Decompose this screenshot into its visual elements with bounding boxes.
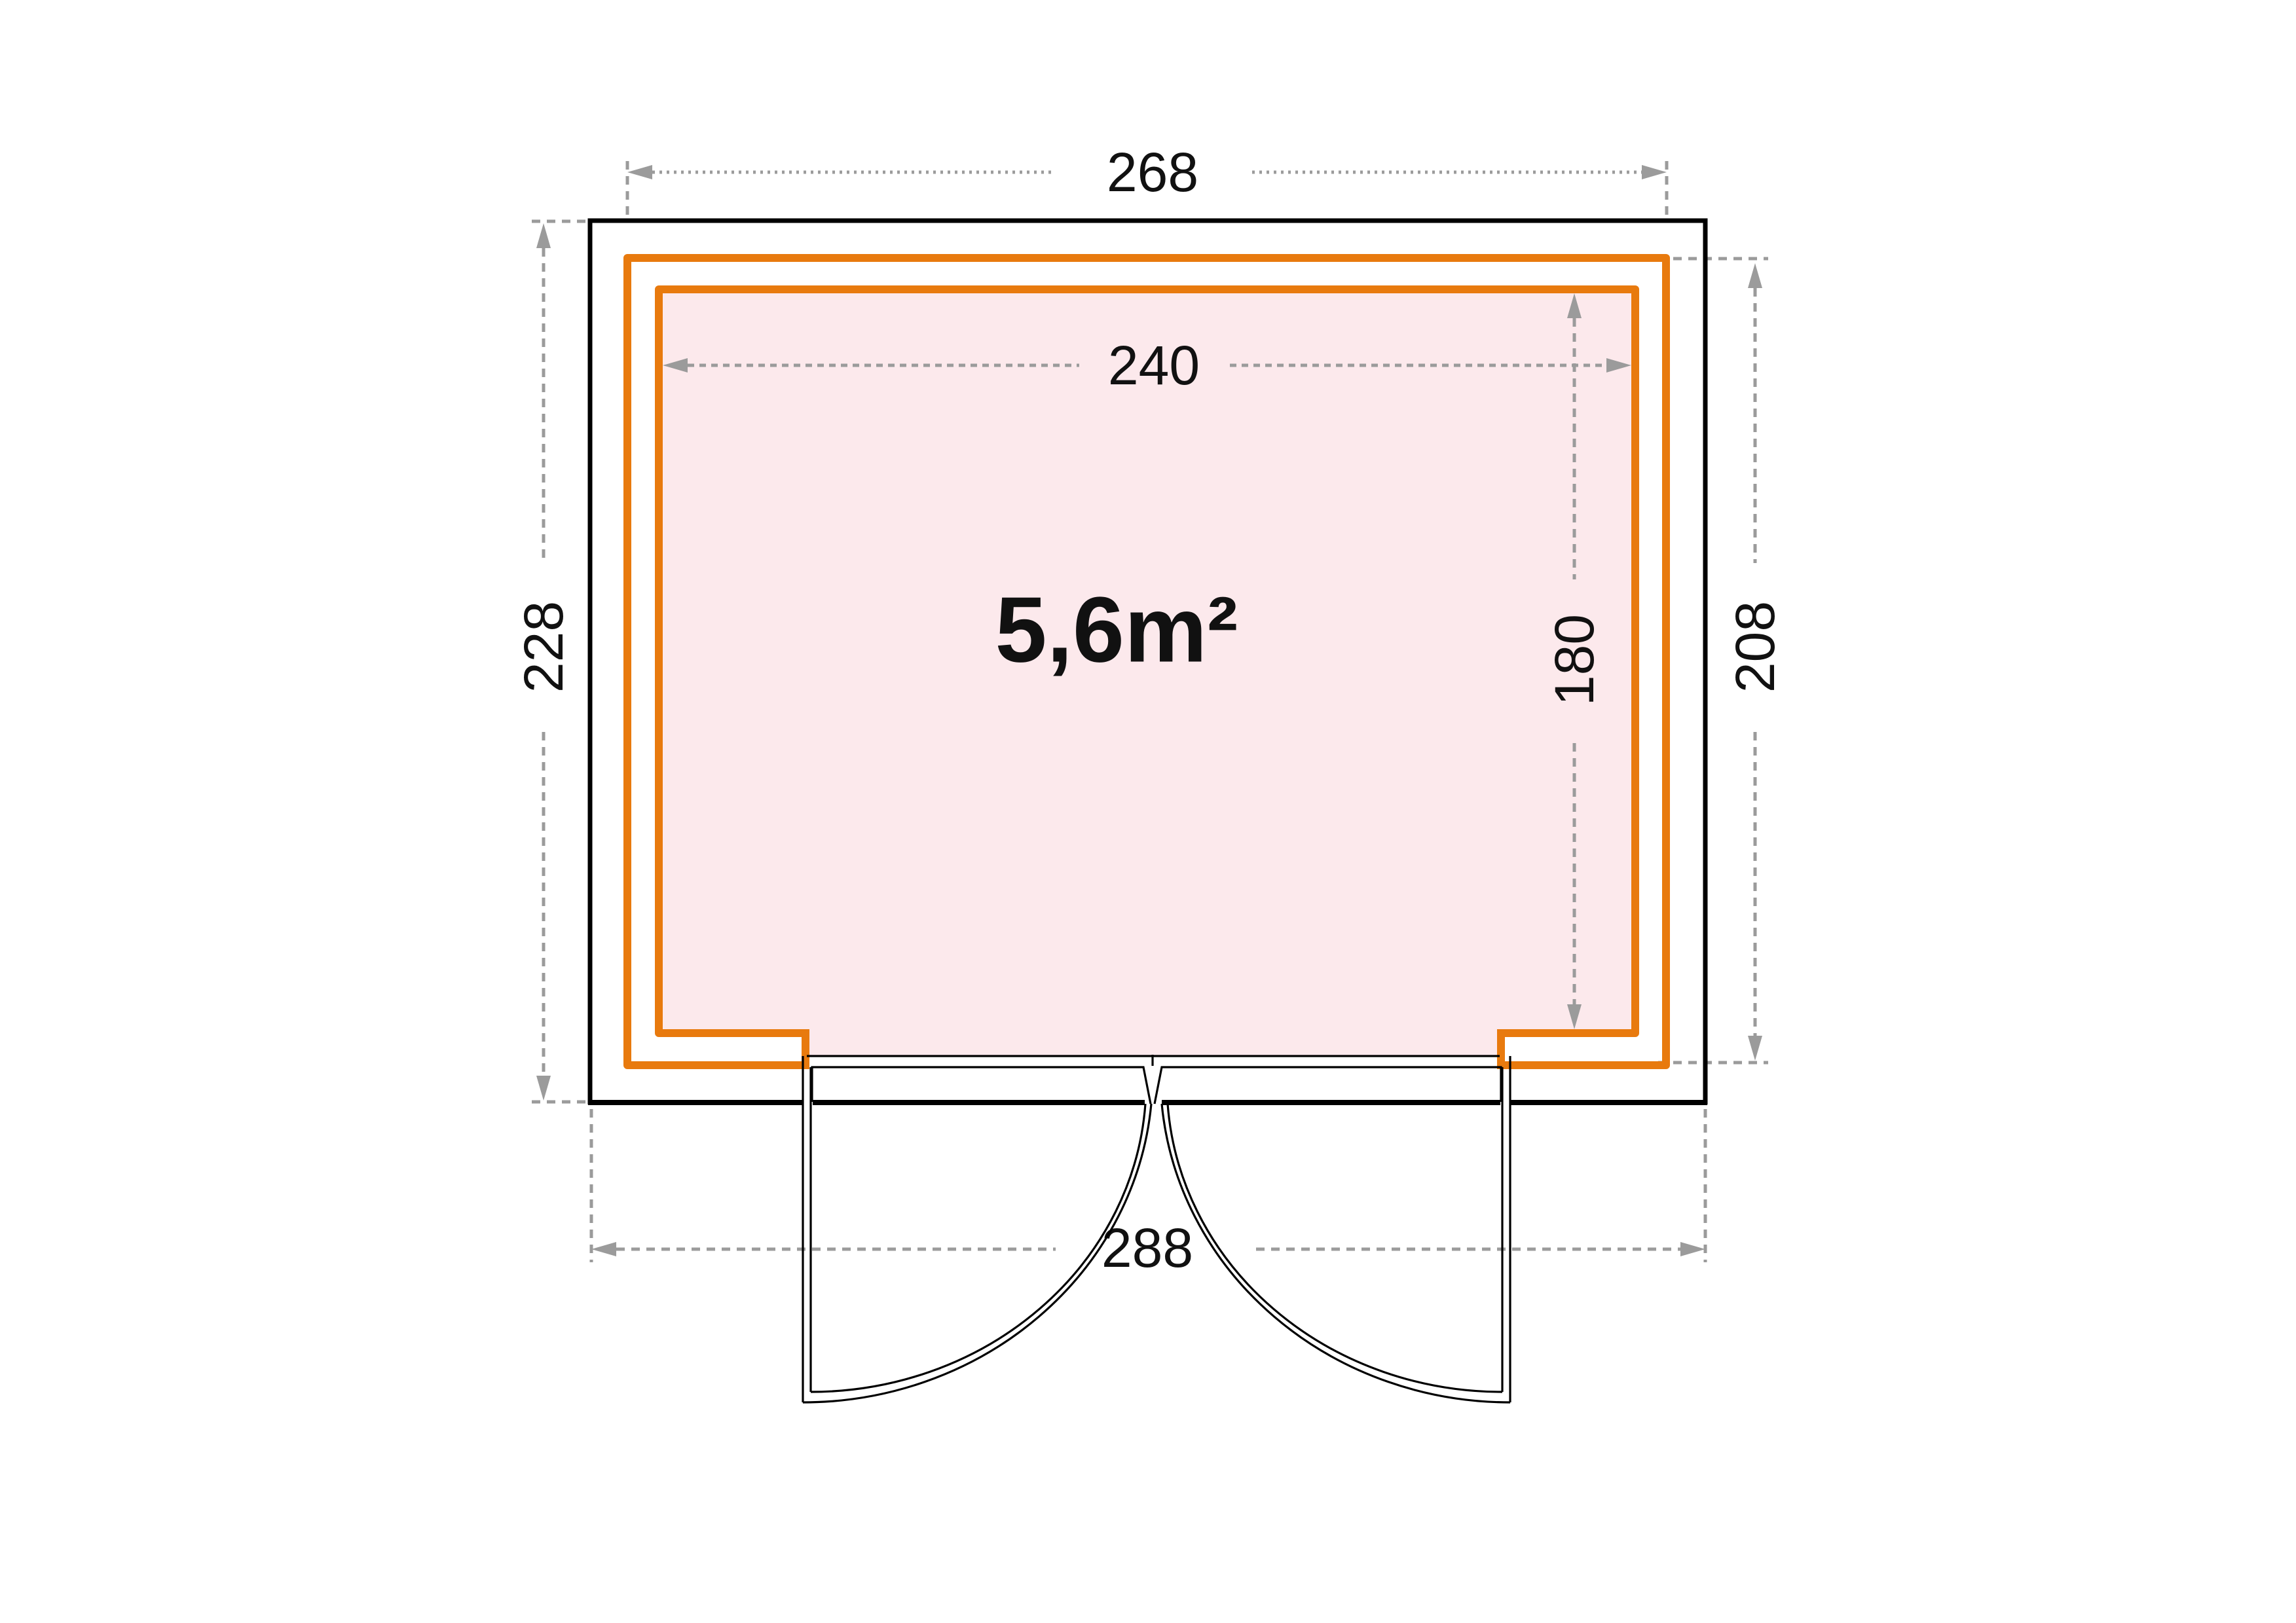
dim-outer-width-top: 268 <box>627 141 1667 218</box>
door-swing-arc-left <box>803 1104 1151 1402</box>
door-leaf-open-right <box>1502 1056 1510 1402</box>
dim-label-left: 228 <box>513 601 574 693</box>
arrow-down-icon <box>536 1076 551 1101</box>
door-swing-arc-right <box>1162 1104 1510 1402</box>
door-leaf-open-left <box>803 1056 811 1402</box>
area-label: 5,6m² <box>995 578 1238 682</box>
dim-label-inner-width: 240 <box>1108 335 1200 396</box>
dim-right-height: 208 <box>1658 259 1786 1063</box>
dim-label-right: 208 <box>1724 601 1786 693</box>
dim-label-bottom: 288 <box>1102 1217 1193 1279</box>
floor-plan-canvas: 268 240 228 208 180 288 <box>0 0 2296 1623</box>
dim-overall-width-bottom: 288 <box>591 1109 1705 1279</box>
arrow-right-icon <box>1680 1242 1705 1256</box>
door-leaf-closed-left <box>812 1067 1151 1104</box>
arrow-down-icon <box>1748 1036 1762 1061</box>
dim-label-top: 268 <box>1107 141 1198 203</box>
arrow-up-icon <box>1748 263 1762 288</box>
arrow-left-icon <box>591 1242 616 1256</box>
dim-label-inner-height: 180 <box>1544 614 1605 706</box>
dim-left-height: 228 <box>513 221 588 1102</box>
floor-plan-page: 268 240 228 208 180 288 <box>0 0 2296 1623</box>
arrow-right-icon <box>1642 165 1667 179</box>
arrow-up-icon <box>536 223 551 248</box>
arrow-left-icon <box>627 165 652 179</box>
door-leaf-closed-right <box>1155 1067 1501 1104</box>
